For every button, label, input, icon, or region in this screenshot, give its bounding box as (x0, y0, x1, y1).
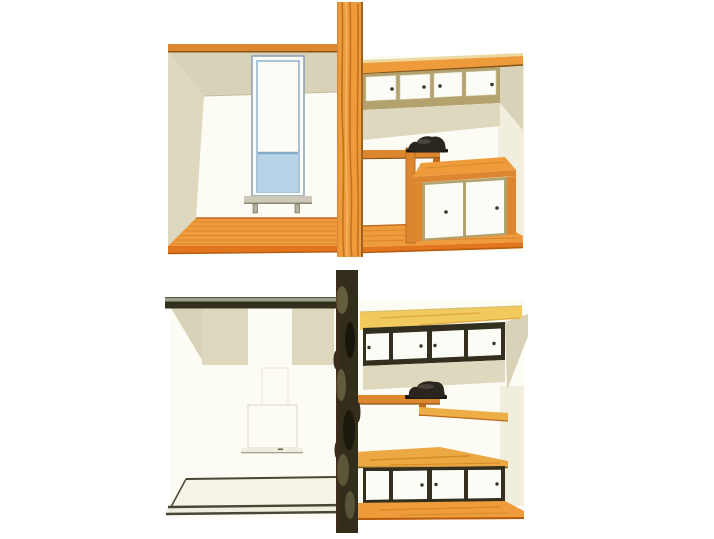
chest-left-stile (413, 183, 422, 243)
pale-floor (166, 477, 346, 515)
dark-beam (165, 297, 347, 309)
floor-front-edge (355, 518, 524, 519)
wall-patch-right (292, 308, 334, 365)
bottom-left-room (165, 297, 347, 518)
sliding-door (366, 471, 389, 500)
chest-right-stile (507, 176, 516, 235)
sliding-doors (366, 329, 501, 361)
top-wood-pillar (337, 2, 363, 257)
bottom-dark-pillar (334, 270, 361, 533)
object-highlight (417, 139, 431, 144)
window-sill (244, 196, 312, 203)
window-glass (258, 153, 298, 192)
sliding-door (425, 183, 463, 239)
door-handle (495, 206, 499, 210)
left-room-floor (168, 218, 338, 254)
low-chest (413, 157, 516, 242)
beam-body (165, 302, 347, 309)
sill-hook-right (295, 204, 300, 213)
sliding-door (434, 72, 462, 98)
object-highlight (418, 384, 434, 389)
lintel-beam (168, 44, 338, 52)
sill-hook-left (253, 204, 258, 213)
top-illustration (168, 2, 524, 257)
sliding-door (468, 329, 501, 357)
wall-patch-left (202, 308, 248, 365)
sliding-door (432, 330, 464, 358)
beam-highlight (165, 298, 347, 302)
top-left-room (168, 44, 338, 254)
bottom-right-section (355, 300, 528, 520)
sill-dark-dash (278, 449, 283, 451)
upper-wall-cabinet (360, 306, 522, 390)
bottom-right-floor (355, 501, 524, 520)
sliding-doors (366, 470, 501, 500)
page-background (0, 0, 714, 539)
top-right-section (363, 53, 524, 253)
watercolor-illustrations (0, 0, 714, 539)
door-handle (444, 210, 448, 214)
floor-surface (168, 477, 344, 507)
lintel-shadow (168, 51, 338, 53)
window-sill (241, 448, 303, 453)
tall-window (244, 56, 312, 213)
window-outline (248, 405, 297, 448)
bottom-illustration (165, 270, 528, 533)
